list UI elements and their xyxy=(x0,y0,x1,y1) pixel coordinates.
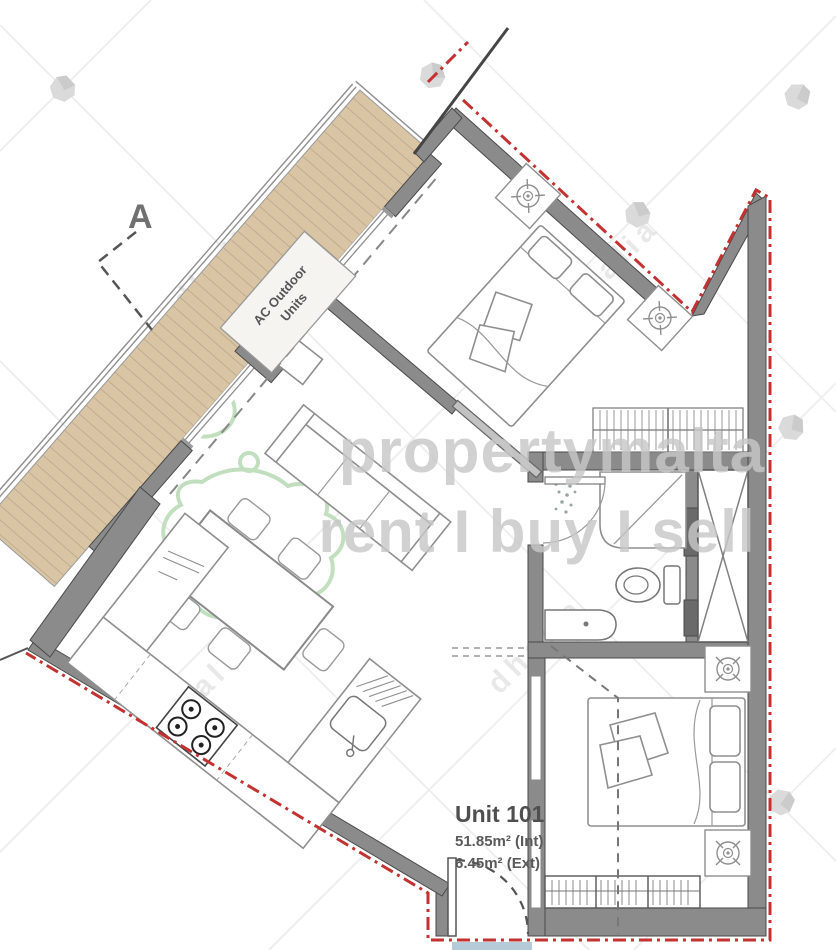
floor-plan: dhalia dhalia dhalia dhalia xyxy=(0,0,836,950)
pillow xyxy=(710,706,740,756)
unit-area-external: 6.45m² (Ext) xyxy=(455,855,540,872)
spotlight-icon xyxy=(705,830,751,876)
brand-watermark-line2: rent I buy I sell xyxy=(318,498,755,565)
brand-watermark-line1: propertymalta xyxy=(339,417,765,486)
bedroom-2 xyxy=(545,646,751,934)
wall-right xyxy=(748,196,766,936)
floor-plan-page: dhalia dhalia dhalia dhalia xyxy=(0,0,836,950)
wall-bedroom1-nw xyxy=(414,108,462,162)
stone-icon xyxy=(781,79,814,112)
spotlight-icon xyxy=(628,286,693,351)
wardrobe-bedroom2 xyxy=(545,876,700,908)
section-line xyxy=(98,232,152,330)
adjacent-area-fragment xyxy=(452,942,532,950)
unit-area-internal: 51.85m² (Int) xyxy=(455,833,543,850)
pillow xyxy=(710,762,740,812)
unit-info: Unit 101 51.85m² (Int) 6.45m² (Ext) xyxy=(455,801,545,872)
spotlight-icon xyxy=(705,646,751,692)
toilet xyxy=(616,566,680,604)
boundary-line-thin xyxy=(0,648,28,660)
wall-bottom xyxy=(540,908,766,936)
vanity-sink xyxy=(545,610,616,640)
internal-window xyxy=(531,676,541,780)
section-marker-label: A xyxy=(128,198,153,236)
unit-title: Unit 101 xyxy=(455,801,545,827)
